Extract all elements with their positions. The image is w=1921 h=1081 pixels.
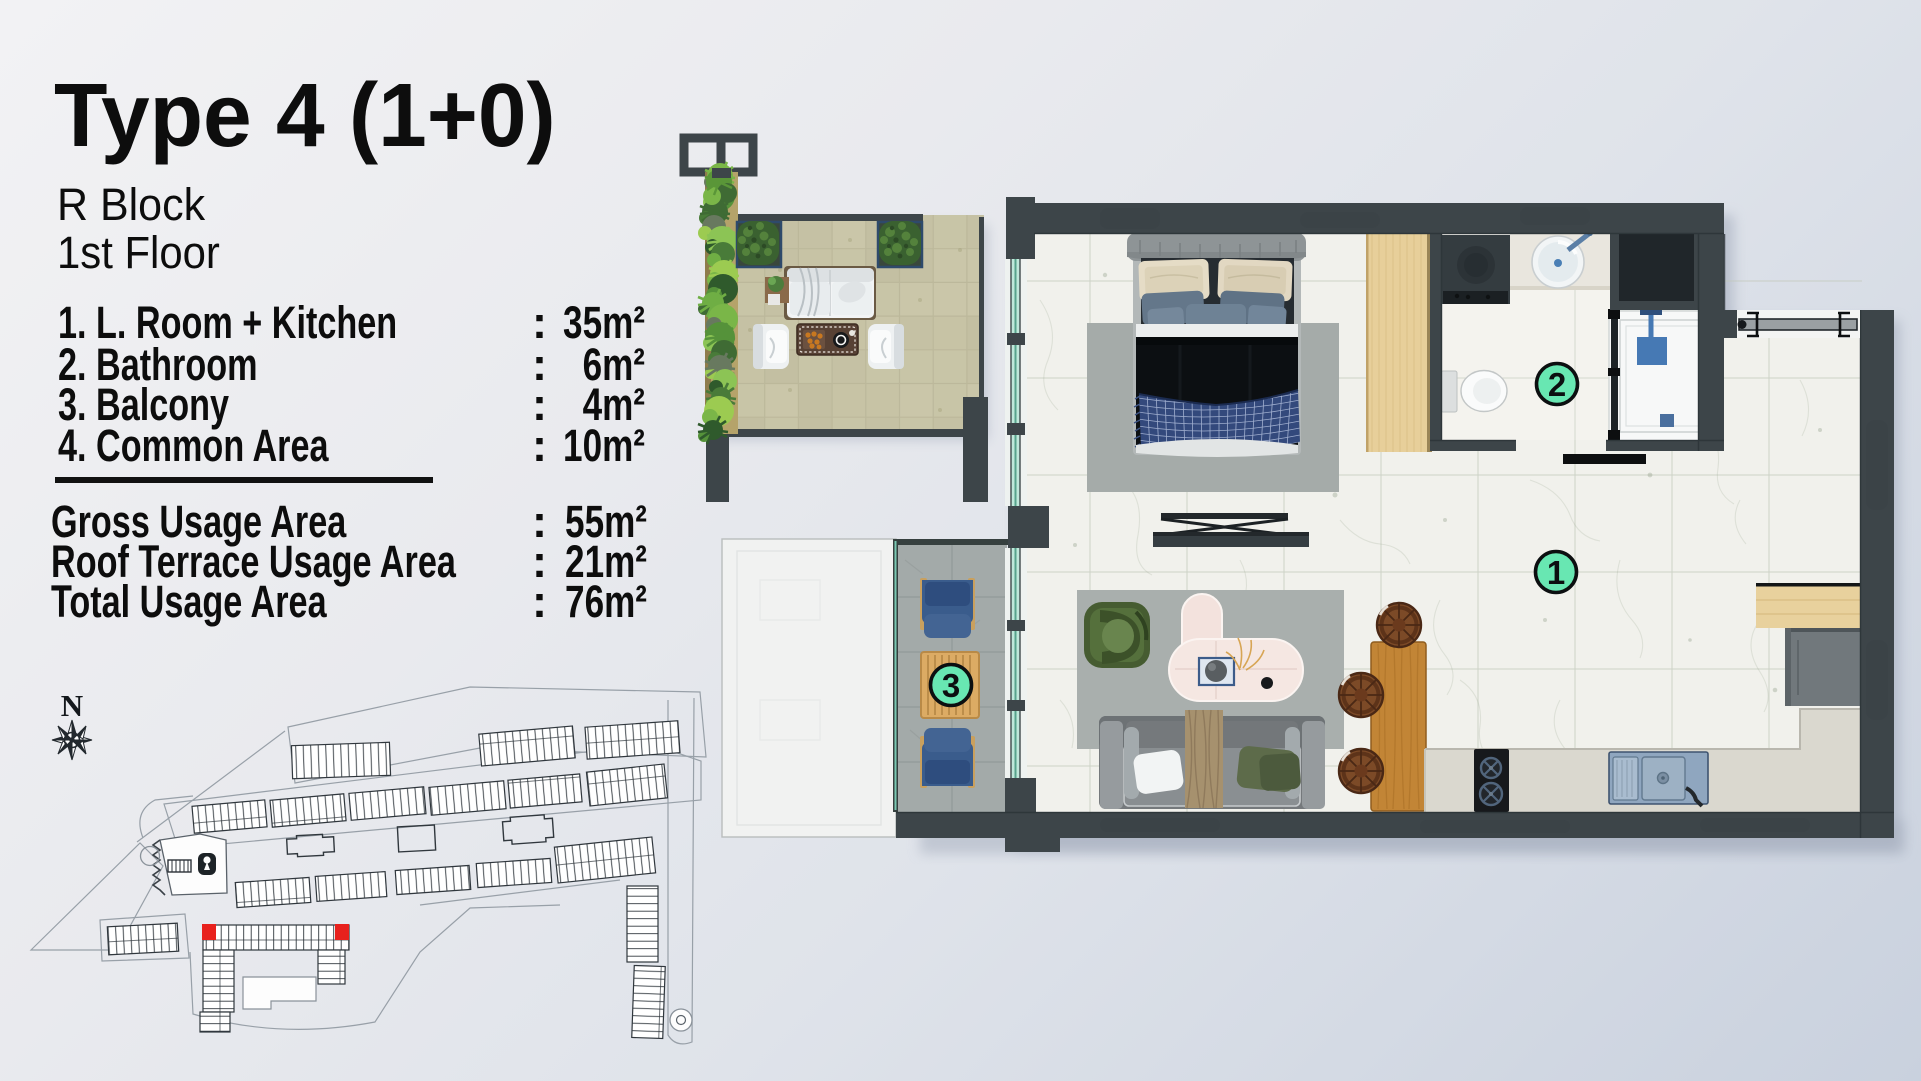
svg-text:N: N xyxy=(61,688,83,723)
svg-text:3: 3 xyxy=(942,667,960,704)
svg-text:1: 1 xyxy=(1547,554,1565,591)
svg-text:2: 2 xyxy=(1548,366,1566,403)
